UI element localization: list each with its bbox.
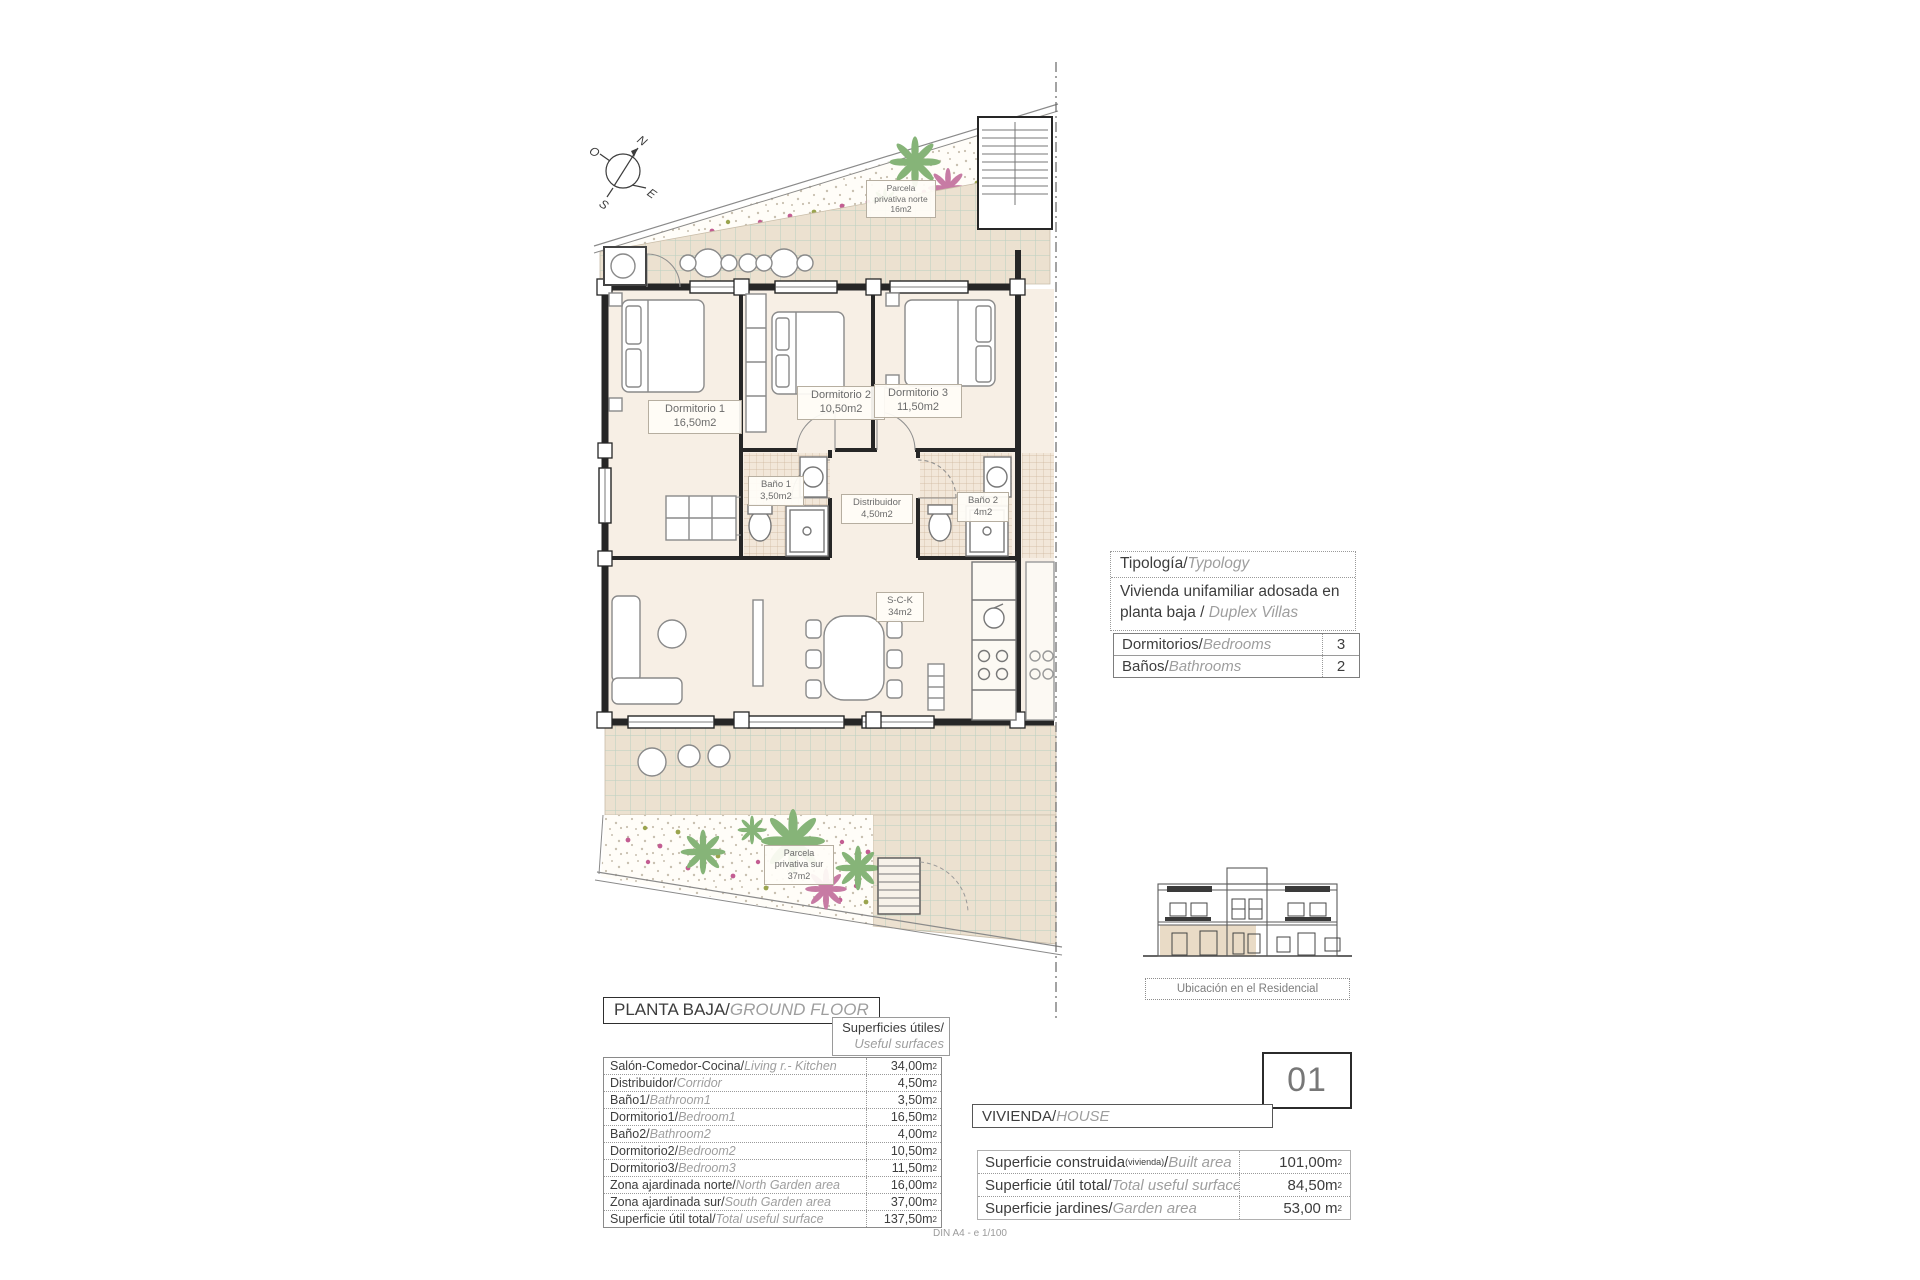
row-value: 10,50m2 — [866, 1143, 941, 1159]
table-row-total: Superficie útil total/Total useful surfa… — [604, 1210, 941, 1227]
label-en: Built area — [1168, 1154, 1231, 1171]
header-en: Useful surfaces — [838, 1036, 944, 1052]
label-line: privativa sur — [768, 859, 830, 870]
value-text: 16,50m — [891, 1110, 933, 1124]
compass-s: S — [597, 197, 612, 213]
label-en: Corridor — [677, 1076, 722, 1090]
label-parcela-sur: Parcela privativa sur 37m2 — [764, 845, 834, 885]
row-label: Dormitorios/Bedrooms — [1114, 636, 1322, 653]
label-parcela-norte: Parcela privativa norte 16m2 — [866, 180, 936, 218]
room-area: 10,50m2 — [801, 403, 881, 417]
row-label: Dormitorio3/Bedroom3 — [604, 1160, 866, 1176]
value-sup: 2 — [933, 1181, 937, 1190]
header-es: Superficies útiles/ — [838, 1020, 944, 1036]
room-name: Baño 1 — [752, 479, 800, 491]
row-label: Baño2/Bathroom2 — [604, 1126, 866, 1142]
location-caption: Ubicación en el Residencial — [1145, 978, 1350, 1000]
table-row: Baño1/Bathroom1 3,50m2 — [604, 1091, 941, 1108]
value-text: 37,00m — [891, 1195, 933, 1209]
value-sup: 2 — [933, 1215, 937, 1224]
table-row: Dormitorios/Bedrooms 3 — [1114, 634, 1359, 655]
label-en: Total useful surfaces — [1112, 1177, 1239, 1194]
table-row: Superficie construida(vivienda)/Built ar… — [978, 1151, 1350, 1173]
room-area: 4,50m2 — [845, 509, 909, 521]
row-label: Dormitorio1/Bedroom1 — [604, 1109, 866, 1125]
scale-note: DIN A4 - e 1/100 — [905, 1228, 1035, 1239]
value-text: 3,50m — [898, 1093, 933, 1107]
row-value: 53,00 m2 — [1239, 1197, 1350, 1219]
stairs-block — [978, 117, 1052, 229]
label-en: HOUSE — [1056, 1108, 1109, 1125]
row-label: Zona ajardinada norte/North Garden area — [604, 1177, 866, 1193]
floor-plan-drawing: N E S O — [0, 0, 1920, 1280]
label-line: privativa norte — [870, 194, 932, 205]
room-area: 4m2 — [961, 507, 1005, 519]
title-es: PLANTA BAJA/ — [614, 1000, 730, 1019]
row-value: 3,50m2 — [866, 1092, 941, 1108]
value-text: 4,50m — [898, 1076, 933, 1090]
room-name: S-C-K — [880, 595, 920, 607]
row-value: 2 — [1322, 656, 1359, 677]
typology-title-en: Typology — [1188, 555, 1250, 572]
row-label: Salón-Comedor-Cocina/Living r.- Kitchen — [604, 1058, 866, 1074]
label-en: Bathroom2 — [650, 1127, 711, 1141]
row-value: 3 — [1322, 634, 1359, 655]
label-dormitorio1: Dormitorio 1 16,50m2 — [648, 400, 742, 434]
table-row: Zona ajardinada norte/North Garden area … — [604, 1176, 941, 1193]
room-area: 34m2 — [880, 607, 920, 619]
label-sck: S-C-K 34m2 — [876, 592, 924, 622]
row-label: Distribuidor/Corridor — [604, 1075, 866, 1091]
value-text: 137,50m — [884, 1212, 933, 1226]
value-sup: 2 — [1338, 1158, 1342, 1167]
value-sup: 2 — [1338, 1181, 1342, 1190]
label-en: Garden area — [1113, 1200, 1197, 1217]
row-label: Baños/Bathrooms — [1114, 658, 1322, 675]
value-sup: 2 — [933, 1062, 937, 1071]
room-area: 11,50m2 — [878, 401, 958, 415]
house-number-box: 01 — [1262, 1052, 1352, 1109]
label-es: Baños/ — [1122, 658, 1169, 675]
label-es: Superficie útil total/ — [610, 1212, 716, 1226]
room-area: 3,50m2 — [752, 491, 800, 503]
value-sup: 2 — [933, 1147, 937, 1156]
residential-elevation — [1143, 868, 1352, 956]
compass-o: O — [587, 144, 603, 161]
row-value: 37,00m2 — [866, 1194, 941, 1210]
table-row: Salón-Comedor-Cocina/Living r.- Kitchen … — [604, 1058, 941, 1074]
typology-title: Tipología/Typology — [1111, 552, 1355, 578]
label-bano1: Baño 1 3,50m2 — [748, 476, 804, 506]
value-text: 84,50m — [1288, 1177, 1338, 1194]
value-sup: 2 — [933, 1113, 937, 1122]
compass-e: E — [645, 186, 660, 203]
row-value: 101,00m2 — [1239, 1151, 1350, 1173]
label-es: Zona ajardinada sur/ — [610, 1195, 725, 1209]
neighbour-kitchen-icon — [1026, 562, 1054, 720]
room-name: Distribuidor — [845, 497, 909, 509]
label-en: Bedroom3 — [678, 1161, 736, 1175]
value-sup: 2 — [933, 1096, 937, 1105]
row-value: 137,50m2 — [866, 1211, 941, 1227]
room-name: Dormitorio 3 — [878, 387, 958, 401]
label-bano2: Baño 2 4m2 — [957, 492, 1009, 522]
label-line: 16m2 — [870, 204, 932, 215]
table-row: Dormitorio1/Bedroom1 16,50m2 — [604, 1108, 941, 1125]
compass-rose: N E S O — [587, 133, 660, 213]
table-row: Dormitorio2/Bedroom2 10,50m2 — [604, 1142, 941, 1159]
label-en: Bathroom1 — [650, 1093, 711, 1107]
row-label: Zona ajardinada sur/South Garden area — [604, 1194, 866, 1210]
row-label: Dormitorio2/Bedroom2 — [604, 1143, 866, 1159]
label-es: Superficie construida — [985, 1154, 1125, 1171]
label-line: 37m2 — [768, 871, 830, 882]
label-distribuidor: Distribuidor 4,50m2 — [841, 494, 913, 524]
table-row: Superficie jardines/Garden area 53,00 m2 — [978, 1196, 1350, 1219]
label-es: Superficie útil total/ — [985, 1177, 1112, 1194]
row-label: Baño1/Bathroom1 — [604, 1092, 866, 1108]
label-es: VIVIENDA/ — [982, 1108, 1056, 1125]
kitchen-counter-icon — [972, 562, 1016, 720]
dining-table-icon — [806, 616, 902, 700]
value-text: 10,50m — [891, 1144, 933, 1158]
table-row: Distribuidor/Corridor 4,50m2 — [604, 1074, 941, 1091]
value-sup: 2 — [933, 1079, 937, 1088]
label-en: Bedroom2 — [678, 1144, 736, 1158]
value-text: 16,00m — [891, 1178, 933, 1192]
label-en: North Garden area — [736, 1178, 840, 1192]
ground-floor-surfaces-table: Salón-Comedor-Cocina/Living r.- Kitchen … — [603, 1057, 942, 1228]
row-value: 16,00m2 — [866, 1177, 941, 1193]
label-es: Superficie jardines/ — [985, 1200, 1113, 1217]
label-line: Parcela — [870, 183, 932, 194]
label-dormitorio2: Dormitorio 2 10,50m2 — [797, 386, 885, 420]
typology-body-en: Duplex Villas — [1209, 604, 1298, 621]
value-sup: 2 — [1338, 1204, 1342, 1213]
shelf-icon — [928, 664, 944, 710]
rooms-count-table: Dormitorios/Bedrooms 3 Baños/Bathrooms 2 — [1113, 633, 1360, 678]
label-en: Bedrooms — [1203, 636, 1271, 653]
row-value: 4,00m2 — [866, 1126, 941, 1142]
label-en: Living r.- Kitchen — [744, 1059, 837, 1073]
room-name: Dormitorio 2 — [801, 389, 881, 403]
room-name: Baño 2 — [961, 495, 1005, 507]
label-en: Total useful surface — [716, 1212, 824, 1226]
porch-storage-icon — [604, 247, 646, 285]
value-text: 53,00 m — [1283, 1200, 1337, 1217]
label-dormitorio3: Dormitorio 3 11,50m2 — [874, 384, 962, 418]
room-area: 16,50m2 — [652, 417, 738, 431]
label-line: Parcela — [768, 848, 830, 859]
row-value: 34,00m2 — [866, 1058, 941, 1074]
vivienda-house-bar: VIVIENDA/HOUSE — [972, 1104, 1273, 1128]
label-es: Dormitorio1/ — [610, 1110, 678, 1124]
table-row: Dormitorio3/Bedroom3 11,50m2 — [604, 1159, 941, 1176]
value-text: 4,00m — [898, 1127, 933, 1141]
value-sup: 2 — [933, 1164, 937, 1173]
label-es: Baño2/ — [610, 1127, 650, 1141]
table-row: Baños/Bathrooms 2 — [1114, 655, 1359, 677]
label-es: Salón-Comedor-Cocina/ — [610, 1059, 744, 1073]
label-es: Dormitorio2/ — [610, 1144, 678, 1158]
room-name: Dormitorio 1 — [652, 403, 738, 417]
row-label: Superficie útil total/Total useful surfa… — [604, 1211, 866, 1227]
useful-surfaces-header: Superficies útiles/ Useful surfaces — [832, 1017, 950, 1056]
tv-unit-icon — [753, 600, 763, 686]
row-value: 4,50m2 — [866, 1075, 941, 1091]
row-label: Superficie jardines/Garden area — [978, 1197, 1239, 1219]
label-es: Dormitorios/ — [1122, 636, 1203, 653]
label-es: Baño1/ — [610, 1093, 650, 1107]
typology-body: Vivienda unifamiliar adosada en planta b… — [1111, 578, 1355, 630]
value-text: 11,50m — [892, 1161, 933, 1175]
value-sup: 2 — [933, 1130, 937, 1139]
label-en: Bathrooms — [1169, 658, 1242, 675]
value-text: 101,00m — [1279, 1154, 1337, 1171]
compass-n: N — [635, 133, 650, 150]
typology-title-es: Tipología/ — [1120, 555, 1188, 572]
label-en: South Garden area — [725, 1195, 831, 1209]
row-value: 16,50m2 — [866, 1109, 941, 1125]
label-es: Distribuidor/ — [610, 1076, 677, 1090]
row-value: 84,50m2 — [1239, 1174, 1350, 1196]
value-sup: 2 — [933, 1198, 937, 1207]
table-row: Superficie útil total/Total useful surfa… — [978, 1173, 1350, 1196]
plan-sheet: N E S O Parcela privativa — [0, 0, 1920, 1280]
label-es: Dormitorio3/ — [610, 1161, 678, 1175]
value-text: 34,00m — [891, 1059, 933, 1073]
table-row: Baño2/Bathroom2 4,00m2 — [604, 1125, 941, 1142]
typology-box: Tipología/Typology Vivienda unifamiliar … — [1110, 551, 1356, 631]
house-surfaces-table: Superficie construida(vivienda)/Built ar… — [977, 1150, 1351, 1220]
wardrobe-icon — [666, 496, 736, 540]
row-value: 11,50m2 — [866, 1160, 941, 1176]
label-paren: (vivienda) — [1125, 1157, 1164, 1167]
row-label: Superficie útil total/Total useful surfa… — [978, 1174, 1239, 1196]
label-en: Bedroom1 — [678, 1110, 736, 1124]
label-es: Zona ajardinada norte/ — [610, 1178, 736, 1192]
table-row: Zona ajardinada sur/South Garden area 37… — [604, 1193, 941, 1210]
row-label: Superficie construida(vivienda)/Built ar… — [978, 1151, 1239, 1173]
